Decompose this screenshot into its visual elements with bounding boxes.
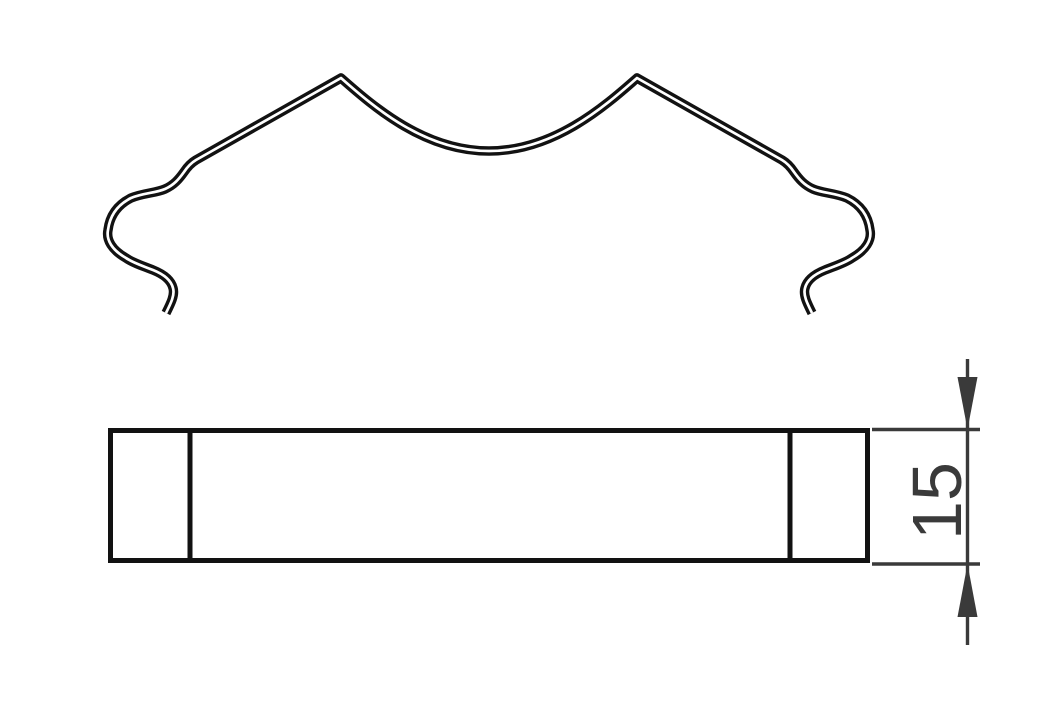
dimension-arrow-top [958, 377, 978, 430]
clip-wire-centerline-highlight [108, 78, 871, 313]
dimension-arrow-bottom [958, 564, 978, 617]
clip-profile-view [108, 78, 871, 313]
clip-side-view [111, 428, 868, 563]
side-view-body [111, 431, 868, 561]
dimension-value-label: 15 [898, 462, 976, 540]
clip-wire-outline [108, 78, 871, 313]
height-dimension: 15 [872, 359, 980, 645]
technical-drawing-canvas: 15 [0, 0, 1052, 704]
clip-technical-drawing: 15 [0, 0, 1052, 704]
